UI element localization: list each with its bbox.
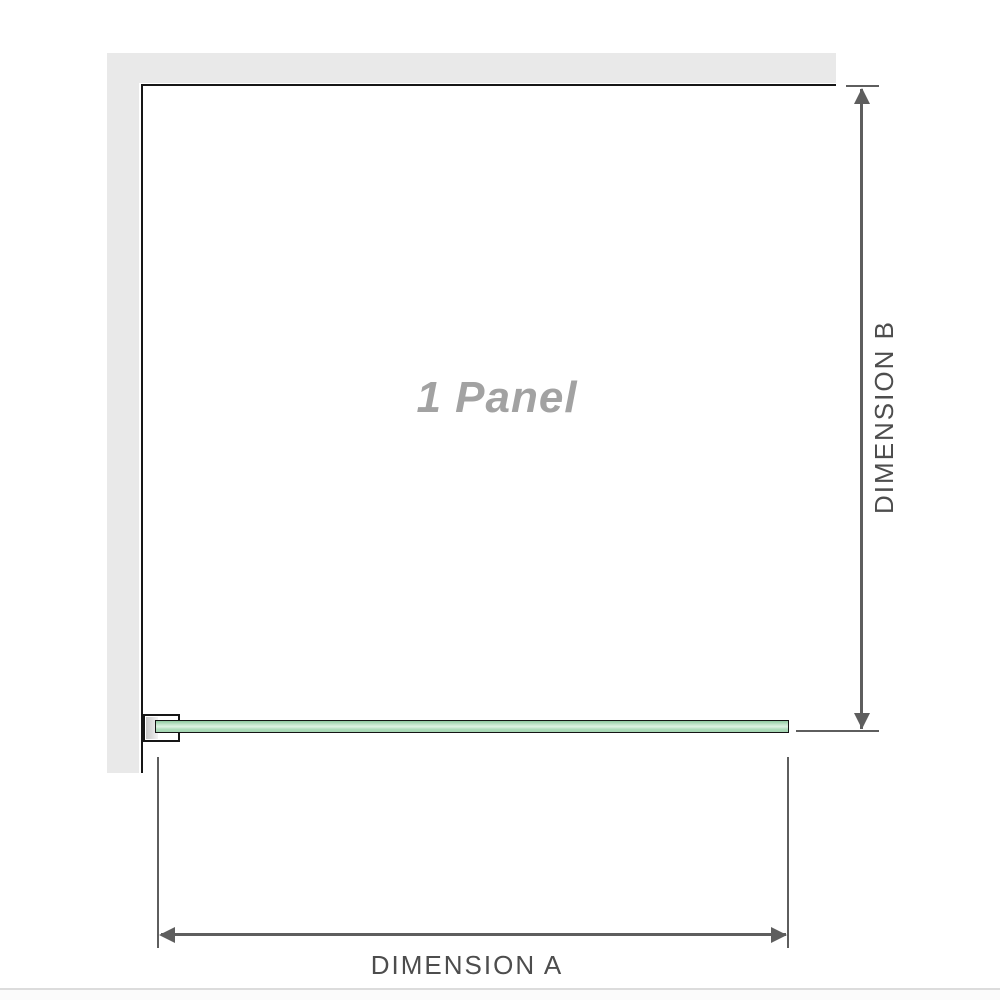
wall-top-bar [107,53,836,83]
dimension-a-tick-left [157,757,159,948]
panel-count-label: 1 Panel [297,368,697,428]
arrow-right-icon [771,927,787,943]
enclosure-outline [141,84,836,773]
glass-panel [155,720,789,733]
dimension-a-label: DIMENSION A [267,948,667,982]
dimension-b-tick-bottom [796,730,879,732]
dimension-b-tick-top [846,85,879,87]
dimension-b-label: DIMENSION B [869,317,899,517]
arrow-down-icon [854,713,870,729]
dimension-a-tick-right [787,757,789,948]
wall-left-bar [107,53,139,773]
shower-panel-diagram: 1 Panel DIMENSION B DIMENSION A [0,0,1000,1000]
dimension-a-line [161,933,786,936]
dimension-b-line [860,89,863,729]
arrow-up-icon [854,88,870,104]
arrow-left-icon [159,927,175,943]
page-bottom-strip [0,990,1000,1000]
page-bottom-divider [0,988,1000,990]
